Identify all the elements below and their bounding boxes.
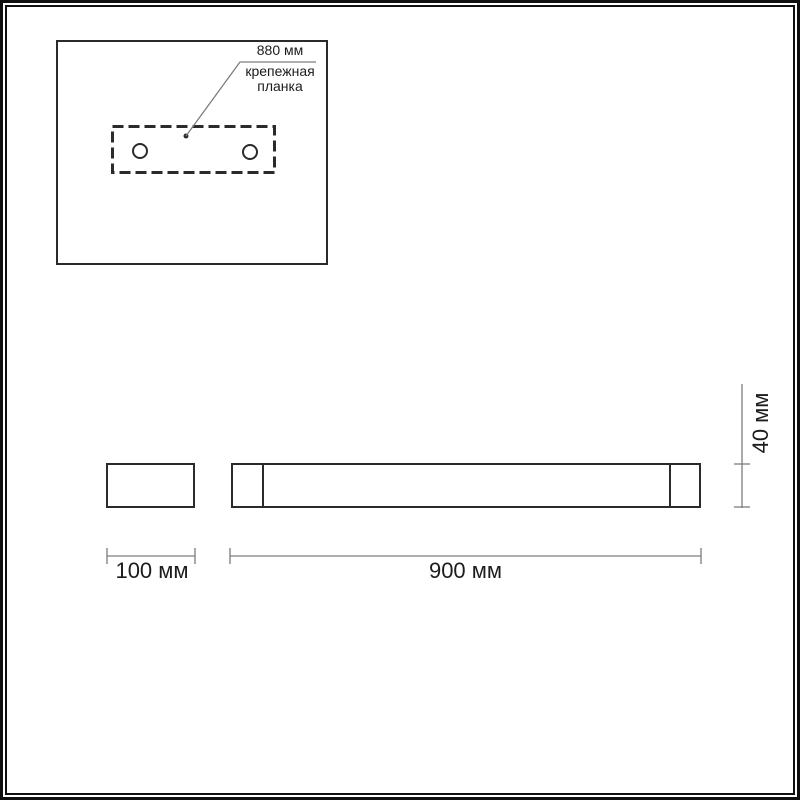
dim-label-40: 40 мм: [748, 378, 774, 468]
dim-label-100: 100 мм: [97, 558, 207, 583]
mounting-hole-right: [243, 145, 257, 159]
part-label: крепежная планка: [220, 64, 340, 93]
dim-label-880: 880 мм: [230, 43, 330, 58]
dim-label-900: 900 мм: [230, 558, 701, 583]
side-view-rect: [107, 464, 194, 507]
drawing-lines: [3, 3, 800, 803]
mounting-plate-dashed-outline: [113, 127, 275, 173]
drawing-canvas: 880 мм крепежная планка 100 мм 900 мм 40…: [0, 0, 800, 800]
mounting-hole-left: [133, 144, 147, 158]
front-view-rect: [232, 464, 700, 507]
part-label-line2: планка: [220, 79, 340, 94]
part-label-line1: крепежная: [220, 64, 340, 79]
